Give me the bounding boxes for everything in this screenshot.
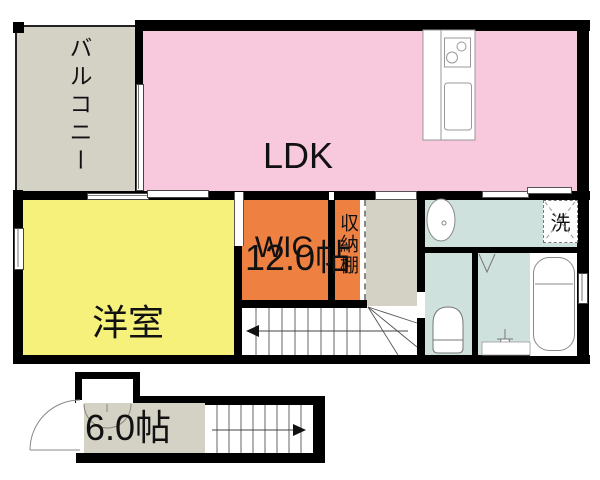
door-toilet-opening (417, 292, 425, 318)
floor-plan: 洗 (0, 0, 600, 480)
window-bathroom (578, 273, 588, 304)
staircase-entry (217, 405, 301, 453)
balcony-label: バルコニー (62, 36, 96, 176)
western-room-name: 洋室 (48, 305, 208, 340)
western-room-size: 6.0帖 (48, 410, 208, 445)
door-washroom-sliding-panel (527, 187, 572, 194)
ldk-name: LDK (218, 139, 378, 173)
door-washroom-sliding-panel (482, 191, 529, 198)
wic-label: WIC (244, 231, 324, 265)
laundry-label: 洗 (551, 207, 571, 236)
wall-segment (417, 247, 589, 253)
door-western-sliding (147, 190, 209, 198)
ldk-label: LDK 12.0帖 (218, 71, 378, 343)
wall-segment (13, 190, 23, 364)
room-toilet (425, 253, 472, 356)
room-bathroom (478, 253, 577, 356)
wall-segment (135, 20, 590, 31)
wall-post (13, 22, 24, 33)
western-room-label: 洋室 6.0帖 (48, 235, 208, 480)
window-western-top (87, 193, 149, 200)
wall-segment (472, 253, 478, 356)
wall-segment (417, 191, 425, 364)
laundry-space: 洗 (543, 200, 578, 243)
window-balcony-sliding (136, 84, 145, 191)
storage-shelf-label: 収納棚 (334, 213, 361, 276)
stairs-arrow-up (212, 424, 306, 436)
window-western-left (14, 228, 24, 270)
door-hallway-opening (375, 191, 417, 200)
